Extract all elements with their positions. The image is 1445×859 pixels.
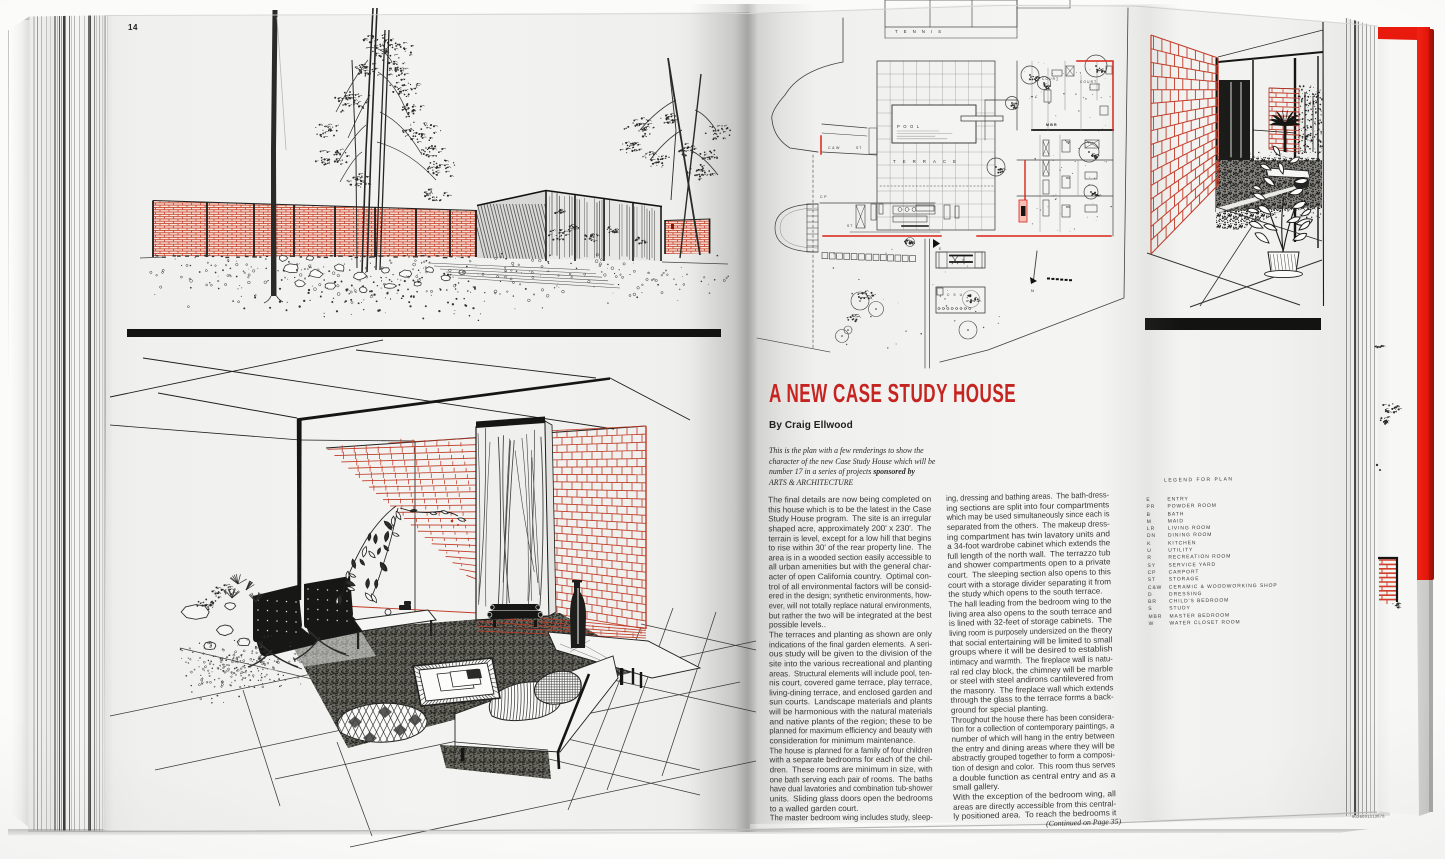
- svg-text:TENNIS: TENNIS: [895, 29, 947, 34]
- svg-text:MBR: MBR: [1046, 123, 1058, 127]
- svg-text:ST: ST: [856, 146, 862, 150]
- svg-text:POOL: POOL: [897, 124, 923, 129]
- svg-text:CP: CP: [820, 195, 828, 199]
- svg-text:TERRACE: TERRACE: [893, 159, 963, 164]
- svg-text:N: N: [1031, 288, 1034, 293]
- svg-text:C S U: C S U: [947, 293, 964, 297]
- svg-text:COURT: COURT: [1080, 80, 1097, 84]
- svg-text:E: E: [939, 247, 942, 251]
- svg-text:9026091313878: 9026091313878: [1352, 813, 1385, 819]
- svg-text:C&W: C&W: [828, 146, 841, 150]
- svg-text:ST: ST: [847, 224, 853, 228]
